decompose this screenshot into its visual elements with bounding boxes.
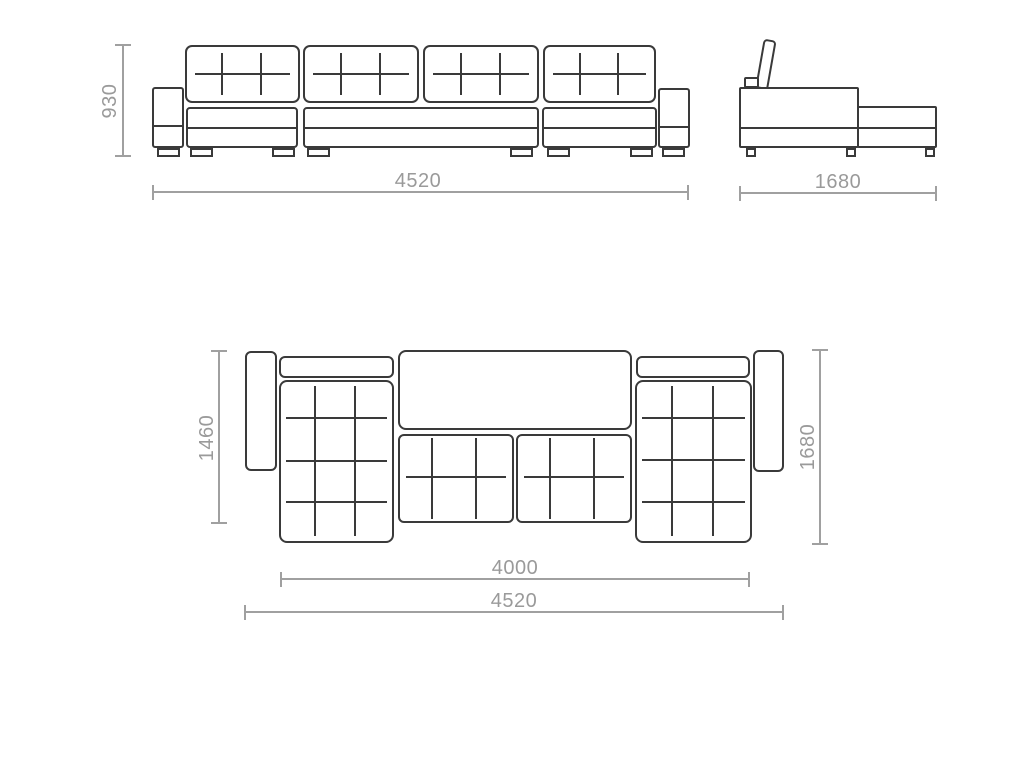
- dimension-tick: [748, 572, 750, 587]
- tuft-line: [286, 501, 387, 503]
- dimension-label: 1680: [798, 424, 818, 471]
- tuft-line: [313, 73, 409, 75]
- sofa-foot: [846, 148, 856, 157]
- seat-seam-line: [544, 127, 655, 129]
- top-armrest-right: [753, 350, 784, 472]
- tuft-line: [579, 53, 581, 95]
- dimension-line: [218, 351, 220, 524]
- top-armrest-left: [245, 351, 277, 471]
- dimension-tick: [812, 543, 828, 545]
- front-seat-section-1: [186, 107, 298, 148]
- tuft-line: [433, 73, 529, 75]
- dimension-tick: [115, 155, 131, 157]
- tuft-line: [195, 73, 290, 75]
- tuft-line: [340, 53, 342, 95]
- top-chaise-right: [635, 380, 752, 543]
- armrest-seam-line: [660, 126, 688, 128]
- front-back-cushion-4: [543, 45, 656, 103]
- sofa-foot: [307, 148, 330, 157]
- front-armrest-right: [658, 88, 690, 148]
- dimension-tick: [280, 572, 282, 587]
- tuft-line: [286, 417, 387, 419]
- dimension-tick: [211, 522, 227, 524]
- front-back-cushion-1: [185, 45, 300, 103]
- tuft-line: [379, 53, 381, 95]
- dimension-tick: [211, 350, 227, 352]
- top-seat-cushion-2: [516, 434, 632, 523]
- tuft-line: [593, 438, 595, 519]
- tuft-line: [221, 53, 223, 95]
- tuft-line: [460, 53, 462, 95]
- dimension-line: [819, 350, 821, 545]
- sofa-technical-drawing: 930 4520 1680 1460 1680 4000: [0, 0, 1024, 768]
- tuft-line: [712, 386, 714, 536]
- tuft-line: [642, 459, 745, 461]
- sofa-foot: [190, 148, 213, 157]
- dimension-label: 4520: [395, 171, 442, 191]
- front-seat-section-2: [303, 107, 539, 148]
- seat-seam-line: [305, 127, 537, 129]
- sofa-foot: [510, 148, 533, 157]
- front-seat-section-3: [542, 107, 657, 148]
- sofa-foot: [272, 148, 295, 157]
- sofa-foot: [662, 148, 685, 157]
- front-armrest-left: [152, 87, 184, 148]
- top-seat-cushion-1: [398, 434, 514, 523]
- dimension-label: 930: [100, 84, 120, 119]
- dimension-line: [122, 45, 124, 157]
- top-back-cushion-right: [636, 356, 750, 378]
- tuft-line: [617, 53, 619, 95]
- dimension-label: 1460: [197, 415, 217, 462]
- tuft-line: [260, 53, 262, 95]
- dimension-tick: [739, 186, 741, 201]
- sofa-foot: [925, 148, 935, 157]
- front-back-cushion-2: [303, 45, 419, 103]
- tuft-line: [642, 501, 745, 503]
- tuft-line: [431, 438, 433, 519]
- top-chaise-left: [279, 380, 394, 543]
- tuft-line: [475, 438, 477, 519]
- tuft-line: [524, 476, 624, 478]
- tuft-line: [553, 73, 646, 75]
- dimension-label: 1680: [815, 172, 862, 192]
- side-seam-line: [741, 127, 935, 129]
- seat-seam-line: [188, 127, 296, 129]
- armrest-seam-line: [154, 125, 182, 127]
- dimension-tick: [935, 186, 937, 201]
- tuft-line: [671, 386, 673, 536]
- tuft-line: [549, 438, 551, 519]
- dimension-label: 4000: [492, 558, 539, 578]
- sofa-foot: [746, 148, 756, 157]
- sofa-foot: [157, 148, 180, 157]
- tuft-line: [642, 417, 745, 419]
- dimension-tick: [115, 44, 131, 46]
- dimension-tick: [152, 185, 154, 200]
- dimension-tick: [782, 605, 784, 620]
- tuft-line: [286, 460, 387, 462]
- dimension-tick: [687, 185, 689, 200]
- side-body: [739, 87, 859, 148]
- sofa-foot: [547, 148, 570, 157]
- sofa-foot: [630, 148, 653, 157]
- dimension-label: 4520: [491, 591, 538, 611]
- front-back-cushion-3: [423, 45, 539, 103]
- top-center-panel: [398, 350, 632, 430]
- top-back-cushion-left: [279, 356, 394, 378]
- dimension-tick: [244, 605, 246, 620]
- dimension-tick: [812, 349, 828, 351]
- tuft-line: [499, 53, 501, 95]
- tuft-line: [406, 476, 506, 478]
